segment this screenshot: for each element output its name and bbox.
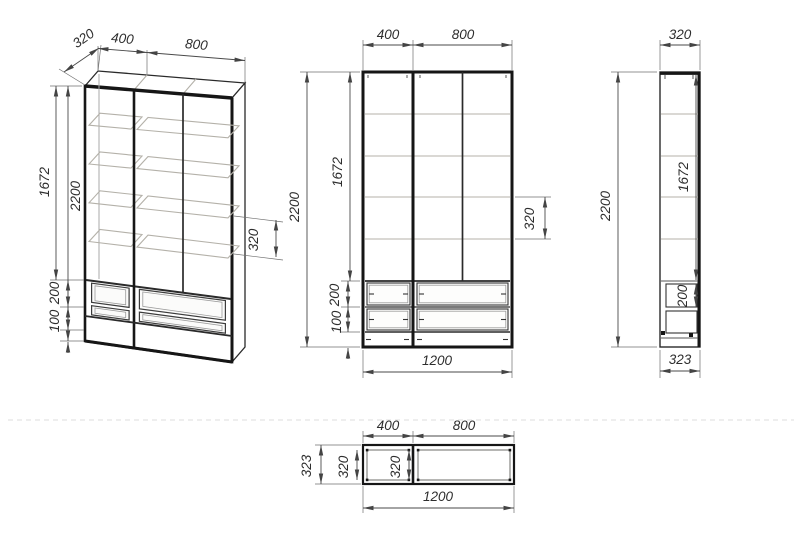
dim-side-drawer-height: 200 — [675, 284, 690, 308]
dim-side-total-height: 2200 — [598, 190, 613, 222]
dim-front-shelf-height: 1672 — [330, 156, 345, 187]
dim-iso-width-right: 800 — [185, 36, 209, 53]
dim-top-inner-depth-left: 320 — [336, 455, 351, 478]
dim-front-width-right: 800 — [452, 27, 475, 42]
dim-top-inner-depth-right: 320 — [388, 455, 403, 478]
view-isometric: 320 400 800 1672 2200 200 100 — [37, 25, 283, 362]
dim-front-drawer-height: 200 — [327, 283, 342, 307]
dim-top-total-width: 1200 — [423, 489, 454, 504]
dim-top-width-left: 400 — [377, 418, 400, 433]
dim-iso-drawer-height: 200 — [47, 281, 62, 305]
view-side: 320 2200 1672 200 323 — [598, 27, 700, 378]
dim-iso-total-height: 2200 — [68, 180, 83, 212]
dim-top-width-right: 800 — [453, 418, 476, 433]
dim-iso-shelf-gap: 320 — [246, 228, 261, 251]
dim-front-total-height: 2200 — [287, 191, 302, 223]
dim-side-shelf-height: 1672 — [676, 161, 691, 192]
dim-front-width-left: 400 — [377, 27, 400, 42]
dim-iso-drawer2-height: 100 — [47, 309, 62, 332]
view-top: 400 800 323 320 320 1200 — [299, 418, 514, 513]
dim-front-shelf-gap: 320 — [522, 207, 537, 230]
dim-front-drawer2-height: 100 — [329, 310, 344, 333]
dim-side-total-depth: 323 — [669, 352, 692, 367]
top-outline — [363, 445, 514, 484]
dim-front-total-width: 1200 — [422, 353, 453, 368]
dim-top-total-depth: 323 — [299, 454, 314, 477]
front-outline — [363, 72, 512, 347]
dim-iso-depth: 320 — [70, 25, 97, 50]
view-front: 400 800 2200 1672 200 100 320 1200 — [287, 27, 551, 378]
dim-side-depth: 320 — [669, 27, 692, 42]
dim-iso-shelf-height: 1672 — [37, 166, 52, 197]
dim-iso-width-left: 400 — [111, 30, 135, 47]
front-drawers — [366, 283, 508, 340]
front-shelves — [365, 114, 510, 239]
blueprint-canvas: 320 400 800 1672 2200 200 100 — [0, 0, 800, 533]
